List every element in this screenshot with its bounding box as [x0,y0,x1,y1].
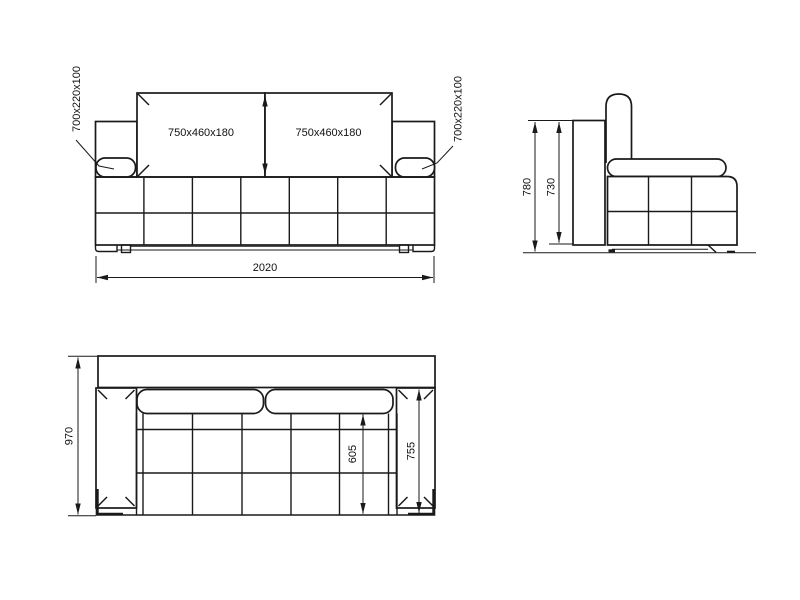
backrest-height-label: 730 [546,178,558,196]
front-width-dimension: 2020 [96,256,434,283]
cushion-left-label: 750x460x180 [168,127,234,139]
front-armrest-pillow-right [396,158,435,177]
front-seat-grid [96,177,435,245]
side-height-dimensions: 780 730 [522,122,574,252]
top-backrest-strip [98,356,435,388]
side-base [523,245,756,253]
top-foot-left [97,489,123,514]
armrest-left-label: 700x220x100 [71,66,83,132]
drawing-canvas: 2020 750x460x180 750x460x180 700x220x100… [0,0,800,600]
armrest-corner-tick [399,390,408,399]
top-armrest-left [96,388,137,508]
top-seat-grid [123,414,408,516]
armrest-corner-tick [424,390,433,399]
front-foot-left [122,245,131,253]
armrest-corner-tick [399,497,408,506]
sofa-technical-drawing: 2020 750x460x180 750x460x180 700x220x100… [0,0,800,600]
side-armrest [608,159,727,177]
top-foot-right [408,489,434,514]
rear-foot-diagonal [708,245,716,252]
top-depth-dimension: 970 [64,356,99,515]
front-seat-base [96,177,435,245]
overall-height-label: 780 [522,178,534,196]
front-armrest-pillow-left [96,158,136,177]
top-back-cushion-left [137,390,264,414]
armrest-length-label: 755 [406,442,418,460]
armrest-corner-tick [98,497,107,506]
armrest-corner-tick [424,497,433,506]
armrest-corner-tick [98,390,107,399]
overall-width-label: 2020 [253,262,277,274]
cushion-right-label: 750x460x180 [295,127,361,139]
seat-depth-label: 605 [347,445,359,463]
overall-depth-label: 970 [64,427,76,445]
side-back-pillow [606,94,632,163]
side-backrest-frame [573,121,605,246]
side-foot-front [609,249,616,252]
top-view: 970 605 755 [64,356,436,516]
armrest-right-label: 700x220x100 [453,76,465,142]
front-foot-right [400,245,409,253]
side-view: 780 730 [522,94,757,253]
base-lip-right [413,245,435,252]
front-view: 2020 750x460x180 750x460x180 700x220x100… [71,66,465,283]
armrest-corner-tick [126,497,135,506]
side-seat-body [608,177,738,246]
armrest-corner-tick [126,390,135,399]
base-lip-left [96,245,118,252]
front-base [96,245,435,253]
top-armrest-length-dimension: 755 [406,390,420,514]
top-back-cushion-right [266,390,394,414]
